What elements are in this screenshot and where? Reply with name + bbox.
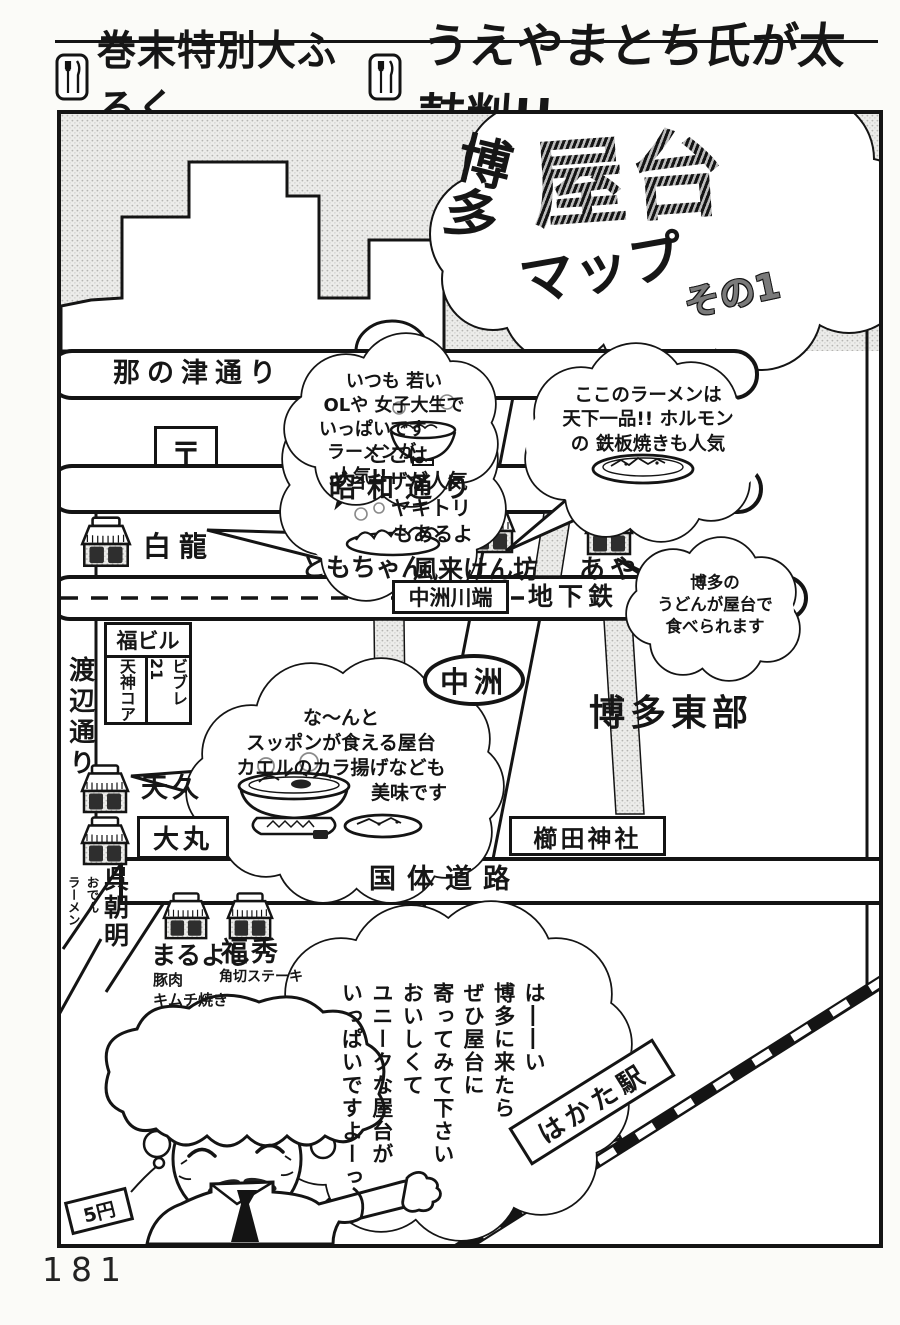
stall-note-ramen: ラーメン (63, 876, 82, 971)
yatai-icon (82, 518, 130, 566)
street-label-nanotsu: 那の津通り (113, 359, 283, 389)
fuku-building-box: 福ビル (104, 622, 192, 655)
daimaru-box: 大丸 (137, 816, 229, 859)
stall-note-gochomei: おでん ラーメン (63, 876, 101, 971)
ramen-bubble-text: いつも 若い OLや 女子大生で いっぱいです ラーメンが 人気!! (319, 370, 469, 489)
tenjin-core-box: 天神コア (104, 655, 148, 725)
vivre-box: ビブレ21 (148, 655, 192, 725)
speech-column: ユニークな屋台が (366, 982, 396, 1182)
bubble-line: いっぱいです (319, 418, 469, 442)
yatai-icon (228, 893, 272, 938)
stall-label-tenkyu: 天久 (141, 774, 203, 804)
stall-label-gochomei: 呉朝明 (101, 866, 129, 976)
stall-label-fukuhide: 福秀 (221, 938, 281, 968)
stall-label-hakuryu: 白龍 (143, 532, 215, 563)
bubble-line: ヤキトリ (323, 495, 473, 521)
hakata-east-label: 博多東部 (589, 694, 753, 734)
nakasu-oval: 中洲 (423, 654, 525, 706)
bubble-line: スッポンが食える屋台 (223, 731, 459, 756)
speech-column: 寄ってみて下さい (427, 982, 457, 1182)
daimaru-label: 大丸 (153, 819, 213, 856)
bubble-line: の 鉄板焼きも人気 (557, 433, 739, 457)
subway-station-label: 中洲川端 (409, 582, 493, 612)
bubble-line: もあるよ (323, 521, 473, 547)
main-speech-text: は――い 博多に来たら ぜひ屋台に 寄ってみて下さい おいしくて ユニークな屋台… (333, 982, 549, 1182)
fork-knife-icon (55, 53, 89, 101)
title-main: 屋台 (528, 125, 730, 234)
suppon-bubble-text: な〜んと スッポンが食える屋台 カエルのカラ揚げなども 美味です (223, 706, 459, 806)
subway-station-box: 中洲川端 (392, 580, 509, 614)
fuku-building-label: 福ビル (117, 625, 180, 655)
speech-column: 博多に来たら (488, 982, 518, 1182)
yatai-map-panel: 〒 (57, 110, 883, 1248)
bubble-line: いつも 若い (319, 370, 469, 394)
map-title-main: 屋台 (531, 132, 727, 228)
speech-column: は――い (519, 982, 549, 1182)
tenjin-vivre-row: 天神コア ビブレ21 (104, 655, 192, 725)
stall-label-tomochan: ともちゃん (301, 554, 426, 582)
bubble-line: うどんが屋台で (647, 594, 783, 616)
stall-label-aya: あや (579, 556, 641, 585)
yatai-icon (164, 893, 208, 938)
map-title-sub: マップ (519, 242, 684, 297)
fork-knife-icon (368, 53, 402, 101)
five-yen-label: 5円 (80, 1194, 118, 1228)
bubble-line: ここのラーメンは (557, 384, 739, 408)
map-title: 博多 (446, 132, 500, 240)
manga-page: 巻末特別大ふろく うえやまとち氏が太鼓判!! 〒 (0, 0, 900, 1325)
stall-note-kimchi: キムチ焼き (153, 992, 228, 1009)
stall-note-butaniku: 豚肉 (153, 972, 183, 989)
street-label-watanabe: 渡辺通り (65, 656, 94, 836)
teppan-plate-drawing (593, 455, 693, 483)
nakasu-label: 中洲 (440, 659, 508, 701)
stall-note-oden: おでん (82, 876, 101, 971)
bubble-line: OLや 女子大生で (319, 394, 469, 418)
tenka-bubble-text: ここのラーメンは 天下一品!! ホルモン の 鉄板焼きも人気 (557, 384, 739, 457)
udon-bubble-text: 博多の うどんが屋台で 食べられます (647, 572, 783, 637)
kushida-shrine-box: 櫛田神社 (509, 816, 666, 856)
bubble-line: 食べられます (647, 616, 783, 638)
title-part: その1 (679, 256, 785, 327)
speech-column: いっぱいですよーっ (336, 982, 366, 1182)
vivre-label: ビブレ21 (147, 658, 190, 722)
kushida-shrine-label: 櫛田神社 (534, 819, 642, 854)
street-label-kokutai: 国体道路 (369, 865, 521, 895)
speech-column: ぜひ屋台に (458, 982, 488, 1182)
bubble-line: 美味です (223, 781, 459, 806)
header: 巻末特別大ふろく うえやまとち氏が太鼓判!! (55, 46, 880, 108)
bubble-line: 博多の (647, 572, 783, 594)
map-title-part: その1 (683, 266, 780, 318)
page-number: 181 (42, 1250, 129, 1289)
fuku-building-group: 福ビル 天神コア ビブレ21 (104, 622, 192, 725)
bubble-line: 人気!! (319, 465, 469, 489)
stall-note-steak: 角切ステーキ (219, 970, 303, 985)
bubble-line: 天下一品!! ホルモン (557, 408, 739, 432)
bubble-line: ラーメンが (319, 441, 469, 465)
bubble-line: な〜んと (223, 706, 459, 731)
tenjin-core-label: 天神コア (114, 658, 138, 722)
subway-label: 地下鉄 (524, 583, 622, 611)
bubble-line: カエルのカラ揚げなども (223, 756, 459, 781)
speech-column: おいしくて (397, 982, 427, 1182)
stall-label-furaikenbo: 風来けん坊 (413, 556, 538, 584)
